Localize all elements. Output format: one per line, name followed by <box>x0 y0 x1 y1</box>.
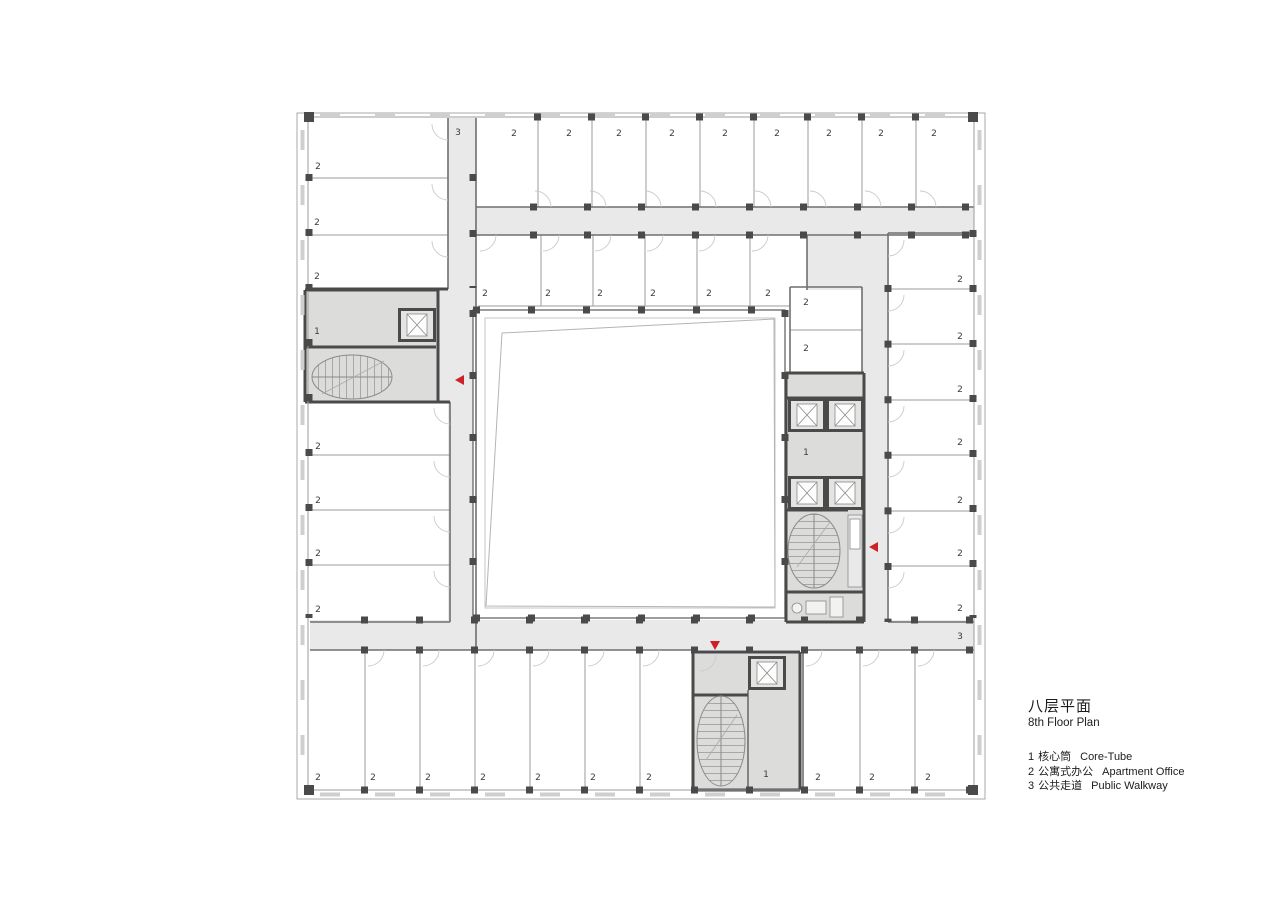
room-label-2: 2 <box>480 773 486 783</box>
room-label-2: 2 <box>957 438 963 448</box>
shaft-inner <box>850 519 860 549</box>
room-label-2: 2 <box>590 773 596 783</box>
plan-title-zh: 八层平面 <box>1028 695 1184 716</box>
elevator <box>750 658 785 689</box>
legend-num: 2 <box>1028 766 1034 778</box>
room-label-2: 2 <box>765 289 771 299</box>
room-label-2: 2 <box>597 289 603 299</box>
room-label-2: 2 <box>650 289 656 299</box>
room-label-2: 2 <box>815 773 821 783</box>
room-label-3: 3 <box>957 632 963 642</box>
plan-title-en: 8th Floor Plan <box>1028 717 1184 729</box>
room-label-2: 2 <box>535 773 541 783</box>
room-label-2: 2 <box>803 298 809 308</box>
room-label-2: 2 <box>706 289 712 299</box>
room-label-2: 2 <box>315 442 321 452</box>
legend-en: Core-Tube <box>1080 751 1132 763</box>
atrium <box>473 310 785 618</box>
room-label-2: 2 <box>315 496 321 506</box>
room-label-2: 2 <box>957 385 963 395</box>
room-label-2: 2 <box>314 218 320 228</box>
legend-zh: 公寓式办公 <box>1038 766 1093 778</box>
stair-bottom <box>697 696 745 786</box>
legend-zh: 公共走道 <box>1038 780 1082 792</box>
corner-column <box>304 785 314 795</box>
room-label-2: 2 <box>370 773 376 783</box>
room-label-3: 3 <box>455 128 461 138</box>
room-label-2: 2 <box>925 773 931 783</box>
room-label-1: 1 <box>763 770 769 780</box>
room-label-2: 2 <box>957 332 963 342</box>
room-label-1: 1 <box>803 448 809 458</box>
room-label-2: 2 <box>482 289 488 299</box>
room-label-2: 2 <box>957 604 963 614</box>
room-label-2: 2 <box>803 344 809 354</box>
room-label-2: 2 <box>957 549 963 559</box>
elevator <box>790 478 825 509</box>
elevator <box>828 478 863 509</box>
room-label-2: 2 <box>646 773 652 783</box>
stair-right <box>788 514 862 588</box>
corner-column <box>304 112 314 122</box>
room-label-2: 2 <box>774 129 780 139</box>
room-label-2: 2 <box>957 275 963 285</box>
legend-num: 3 <box>1028 780 1034 792</box>
room-label-2: 2 <box>315 605 321 615</box>
room-label-2: 2 <box>545 289 551 299</box>
room-label-2: 2 <box>931 129 937 139</box>
legend-num: 1 <box>1028 751 1034 763</box>
legend-item-core-tube: 1核心筒Core-Tube <box>1028 750 1184 765</box>
legend-zh: 核心筒 <box>1038 751 1071 763</box>
corner-column <box>968 112 978 122</box>
room-label-2: 2 <box>315 549 321 559</box>
room-label-2: 2 <box>878 129 884 139</box>
room-label-2: 2 <box>425 773 431 783</box>
room-label-1: 1 <box>314 327 320 337</box>
room-label-2: 2 <box>315 162 321 172</box>
legend: 八层平面 8th Floor Plan 1核心筒Core-Tube 2公寓式办公… <box>1028 695 1184 794</box>
room-label-2: 2 <box>869 773 875 783</box>
elevator <box>400 310 435 341</box>
room-label-2: 2 <box>826 129 832 139</box>
room-label-2: 2 <box>722 129 728 139</box>
room-label-2: 2 <box>566 129 572 139</box>
room-label-2: 2 <box>314 272 320 282</box>
legend-en: Apartment Office <box>1102 766 1184 778</box>
room-label-2: 2 <box>315 773 321 783</box>
room-label-2: 2 <box>511 129 517 139</box>
elevator <box>828 400 863 431</box>
legend-item-public-walkway: 3公共走道Public Walkway <box>1028 779 1184 794</box>
legend-item-apartment-office: 2公寓式办公Apartment Office <box>1028 765 1184 780</box>
legend-en: Public Walkway <box>1091 780 1168 792</box>
stair-left <box>312 355 392 399</box>
elevator <box>790 400 825 431</box>
room-label-2: 2 <box>669 129 675 139</box>
room-label-2: 2 <box>957 496 963 506</box>
room-label-2: 2 <box>616 129 622 139</box>
